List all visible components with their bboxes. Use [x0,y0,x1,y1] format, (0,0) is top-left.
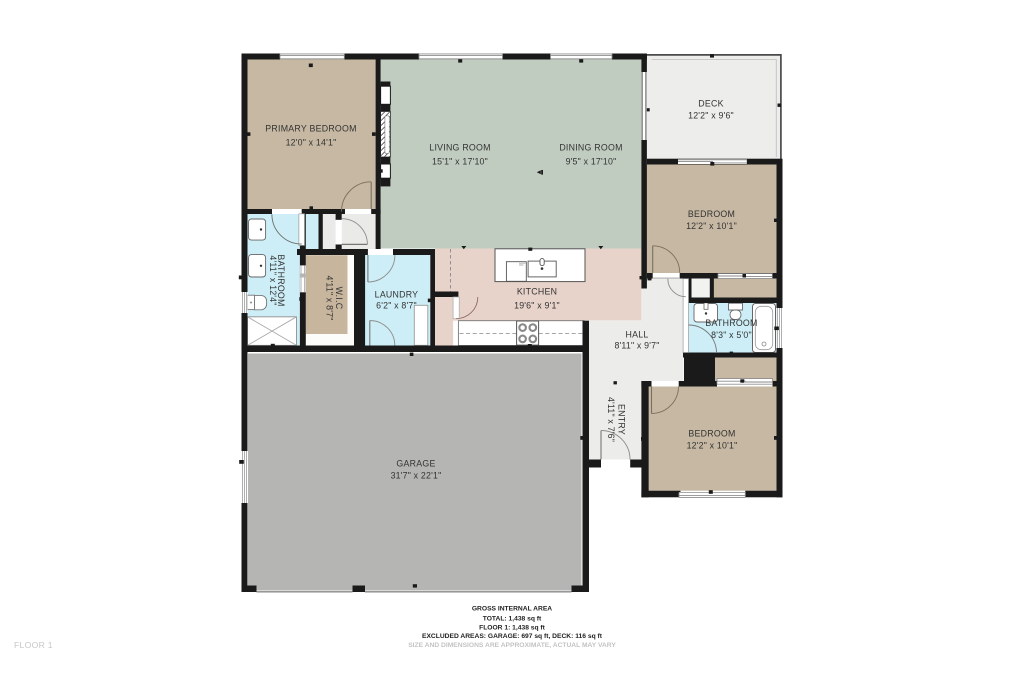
svg-text:12'2" x 9'6": 12'2" x 9'6" [688,111,734,121]
svg-text:LAUNDRY: LAUNDRY [375,290,419,300]
svg-text:HALL: HALL [625,330,648,340]
svg-text:FLOOR 1: 1,438 sq ft: FLOOR 1: 1,438 sq ft [479,625,546,632]
svg-text:FLOOR 1: FLOOR 1 [14,640,53,650]
svg-text:BEDROOM: BEDROOM [688,429,735,439]
svg-text:12'2" x 10'1": 12'2" x 10'1" [686,221,737,231]
svg-text:KITCHEN: KITCHEN [517,287,557,297]
svg-text:19'6" x 9'1": 19'6" x 9'1" [514,301,560,311]
svg-text:4'11" x 8'7": 4'11" x 8'7" [325,275,335,320]
svg-text:6'2" x 8'7": 6'2" x 8'7" [376,301,417,311]
svg-text:4'11" x 12'4": 4'11" x 12'4" [268,255,278,305]
svg-text:15'1" x 17'10": 15'1" x 17'10" [432,157,488,167]
svg-text:9'5" x 17'10": 9'5" x 17'10" [566,157,617,167]
svg-text:31'7" x 22'1": 31'7" x 22'1" [391,471,442,481]
svg-text:8'3" x 5'0": 8'3" x 5'0" [711,330,752,340]
svg-text:W.I.C: W.I.C [334,287,344,310]
svg-text:GROSS INTERNAL AREA: GROSS INTERNAL AREA [472,606,552,613]
svg-text:BEDROOM: BEDROOM [688,209,735,219]
svg-text:DINING ROOM: DINING ROOM [559,143,622,153]
svg-text:GARAGE: GARAGE [396,459,435,469]
svg-text:8'11" x 9'7": 8'11" x 9'7" [614,341,659,351]
svg-text:SIZE AND DIMENSIONS ARE APPROX: SIZE AND DIMENSIONS ARE APPROXIMATE, ACT… [408,642,616,649]
svg-text:ENTRY: ENTRY [617,404,627,435]
svg-text:12'0" x 14'1": 12'0" x 14'1" [286,138,337,148]
svg-text:TOTAL: 1,438 sq ft: TOTAL: 1,438 sq ft [483,616,542,623]
svg-text:EXCLUDED AREAS: GARAGE: 697 sq: EXCLUDED AREAS: GARAGE: 697 sq ft, DECK:… [422,633,603,640]
svg-text:DECK: DECK [698,99,723,109]
svg-text:BATHROOM: BATHROOM [705,318,757,328]
svg-text:12'2" x 10'1": 12'2" x 10'1" [687,441,738,451]
svg-text:PRIMARY BEDROOM: PRIMARY BEDROOM [265,124,356,134]
svg-text:LIVING ROOM: LIVING ROOM [429,143,490,153]
svg-text:4'11" x 7'6": 4'11" x 7'6" [606,397,616,442]
